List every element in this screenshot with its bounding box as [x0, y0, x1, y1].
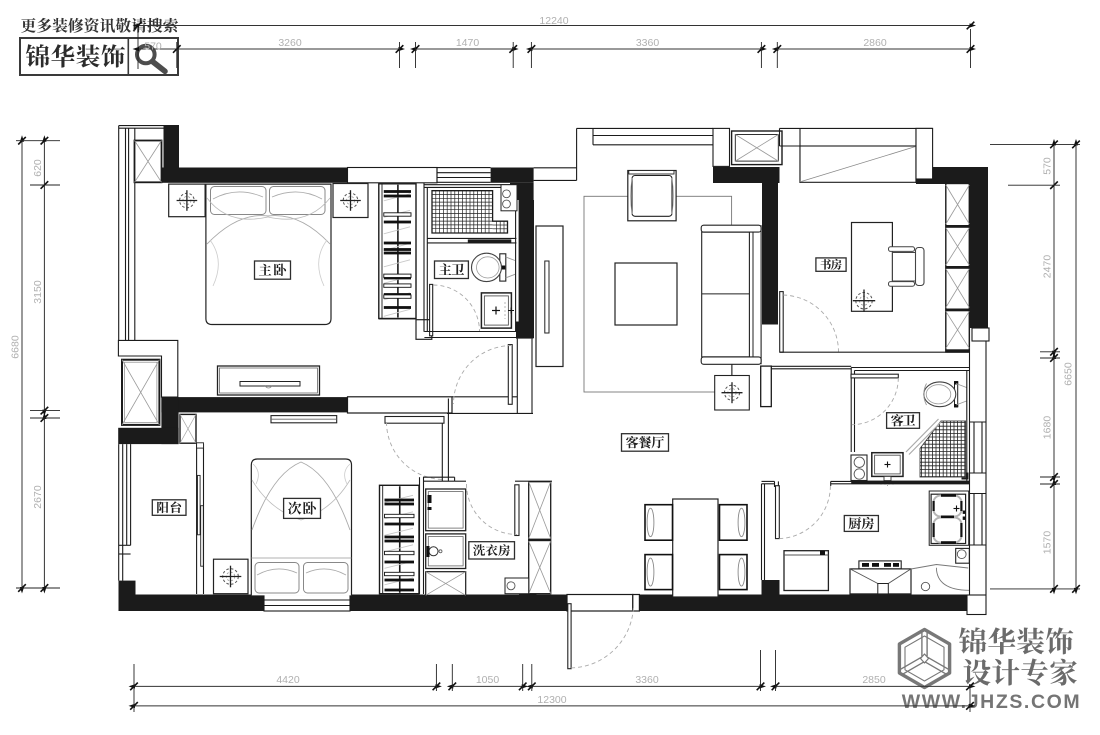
svg-text:1050: 1050 — [476, 674, 500, 686]
svg-text:2670: 2670 — [32, 485, 44, 509]
svg-text:6680: 6680 — [10, 335, 22, 359]
svg-text:570: 570 — [1042, 157, 1054, 175]
svg-text:1570: 1570 — [1042, 531, 1054, 555]
svg-text:6650: 6650 — [1063, 362, 1075, 386]
svg-text:2470: 2470 — [1042, 255, 1054, 279]
svg-text:1470: 1470 — [456, 37, 480, 49]
svg-text:1680: 1680 — [1042, 416, 1054, 440]
svg-text:WWW.JHZS.COM: WWW.JHZS.COM — [902, 691, 1082, 713]
svg-text:3260: 3260 — [278, 37, 302, 49]
svg-text:570: 570 — [144, 41, 162, 53]
svg-text:12300: 12300 — [537, 694, 566, 706]
svg-text:2850: 2850 — [862, 674, 886, 686]
svg-text:3360: 3360 — [636, 37, 660, 49]
svg-text:620: 620 — [32, 159, 44, 177]
svg-text:2860: 2860 — [863, 37, 887, 49]
svg-text:3360: 3360 — [635, 674, 659, 686]
svg-text:3150: 3150 — [32, 280, 44, 304]
svg-text:4420: 4420 — [276, 674, 300, 686]
svg-text:12240: 12240 — [539, 15, 568, 27]
